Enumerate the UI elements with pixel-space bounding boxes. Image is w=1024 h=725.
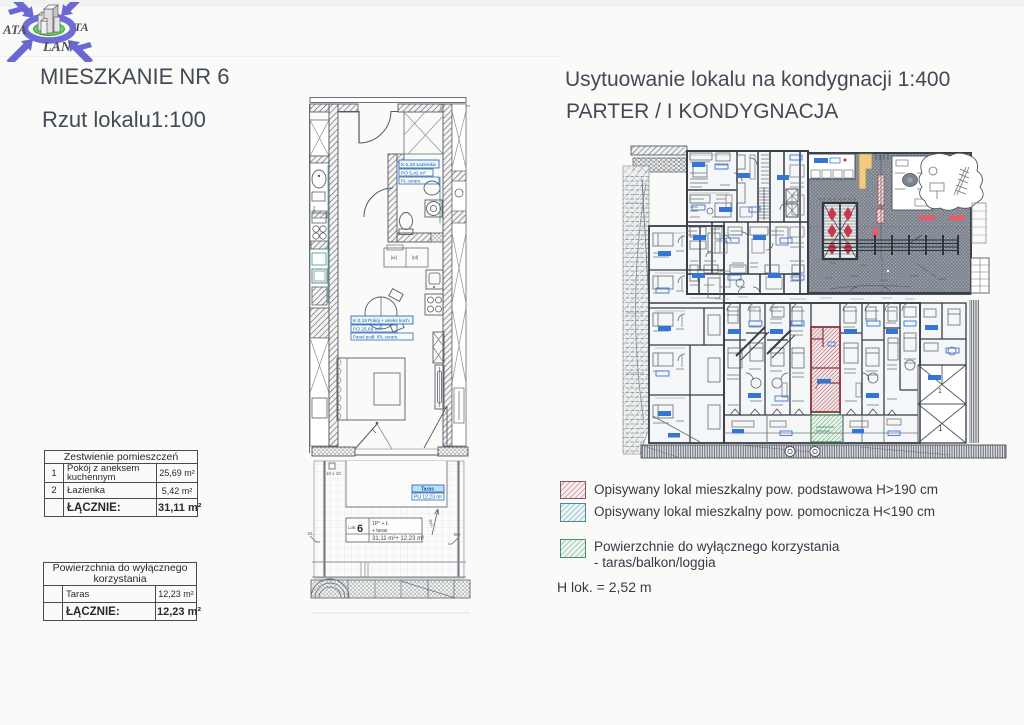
- svg-text:+ taras: + taras: [372, 528, 388, 534]
- svg-text:1: 1: [938, 424, 943, 433]
- svg-text:1P° + Ł: 1P° + Ł: [372, 521, 389, 527]
- svg-text:PL ceram.: PL ceram.: [401, 179, 421, 184]
- svg-text:TA: TA: [74, 20, 89, 34]
- svg-text:6: 6: [357, 523, 363, 535]
- svg-text:EL: EL: [308, 531, 314, 536]
- svg-text:ATA: ATA: [2, 22, 27, 37]
- svg-text:PO 5,42 m²: PO 5,42 m²: [401, 171, 426, 177]
- svg-text:Lok.: Lok.: [348, 525, 357, 530]
- svg-text:K-2.20 Łazienka: K-2.20 Łazienka: [401, 162, 436, 168]
- svg-text:Panel podł. /PL ceram.: Panel podł. /PL ceram.: [353, 335, 398, 340]
- svg-text:lod.: lod.: [312, 206, 316, 212]
- svg-text:K-2.19 Pokój + aneks kuch.: K-2.19 Pokój + aneks kuch.: [353, 318, 410, 323]
- svg-text:PU 12,23 m²: PU 12,23 m²: [414, 495, 442, 501]
- svg-text:LAN: LAN: [42, 40, 72, 55]
- svg-text:Taras: Taras: [421, 487, 434, 493]
- svg-text:[td]: [td]: [412, 255, 418, 260]
- svg-text:[w]: [w]: [391, 255, 397, 260]
- svg-text:10 x 10: 10 x 10: [326, 471, 341, 476]
- svg-text:PO 25,69 m²: PO 25,69 m²: [353, 327, 381, 333]
- svg-text:31,11 m²+ 12,23 m²: 31,11 m²+ 12,23 m²: [372, 536, 424, 542]
- svg-text:1: 1: [938, 388, 942, 395]
